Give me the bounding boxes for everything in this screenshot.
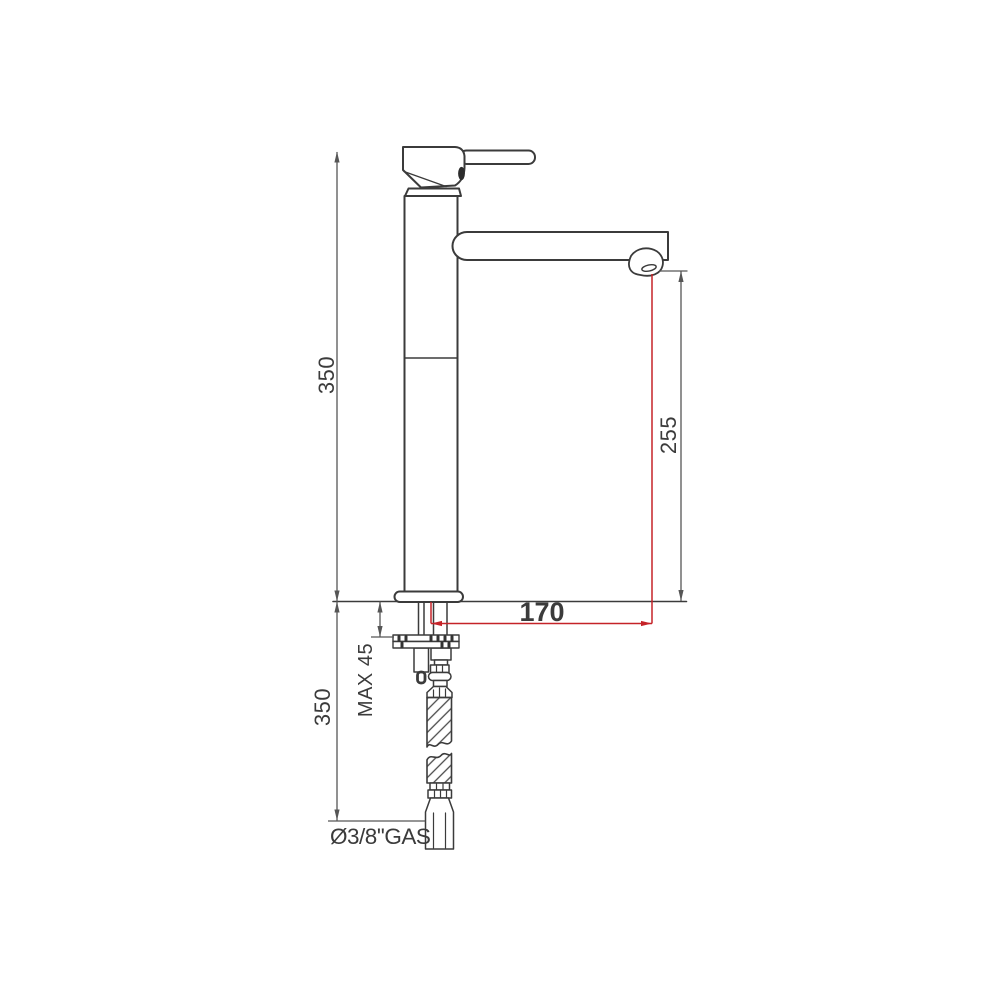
- dim-label-spout-outlet-height: 255: [656, 416, 681, 454]
- flex-hose-upper: [427, 698, 452, 748]
- arrow-255-bottom: [678, 590, 683, 601]
- neck-ring: [405, 189, 461, 197]
- handle-lever: [460, 151, 535, 165]
- dim-label-max-counter-thickness: MAX 45: [355, 643, 377, 717]
- stud-tip: [418, 672, 426, 683]
- mounting-washer: [393, 635, 459, 648]
- drawing-canvas: 350 350 MAX 45 255 170 Ø3/8''GAS: [0, 0, 1000, 1000]
- dim-label-connection-size: Ø3/8''GAS: [330, 824, 430, 849]
- dim-170-group: [431, 274, 652, 624]
- dim-label-length-below-counter: 350: [310, 688, 335, 726]
- handle-pin: [458, 167, 465, 180]
- arrow-max45-top: [377, 602, 382, 613]
- arrow-up-counter: [334, 602, 339, 613]
- hose-coupling: [427, 665, 452, 698]
- flex-hose-lower: [427, 754, 452, 784]
- arrow-max45-bottom: [377, 626, 382, 637]
- arrow-170-right: [641, 621, 652, 626]
- technical-drawing-svg: 350 350 MAX 45 255 170 Ø3/8''GAS: [0, 0, 1000, 1000]
- arrow-up-top: [334, 152, 339, 163]
- flex-hose: [427, 698, 452, 784]
- dim-label-spout-reach: 170: [519, 597, 564, 627]
- base-plate: [395, 592, 464, 603]
- faucet-outline: [333, 147, 687, 849]
- body-column: [405, 196, 458, 592]
- arrow-170-left: [431, 621, 442, 626]
- arrow-down-bottom: [334, 810, 339, 821]
- dim-label-height-above-counter: 350: [314, 356, 339, 394]
- compression-olive: [429, 673, 452, 681]
- stud-sleeve: [414, 648, 429, 672]
- arrow-down-counter: [334, 591, 339, 602]
- arrow-255-top: [678, 271, 683, 282]
- supply-shank: [431, 602, 451, 665]
